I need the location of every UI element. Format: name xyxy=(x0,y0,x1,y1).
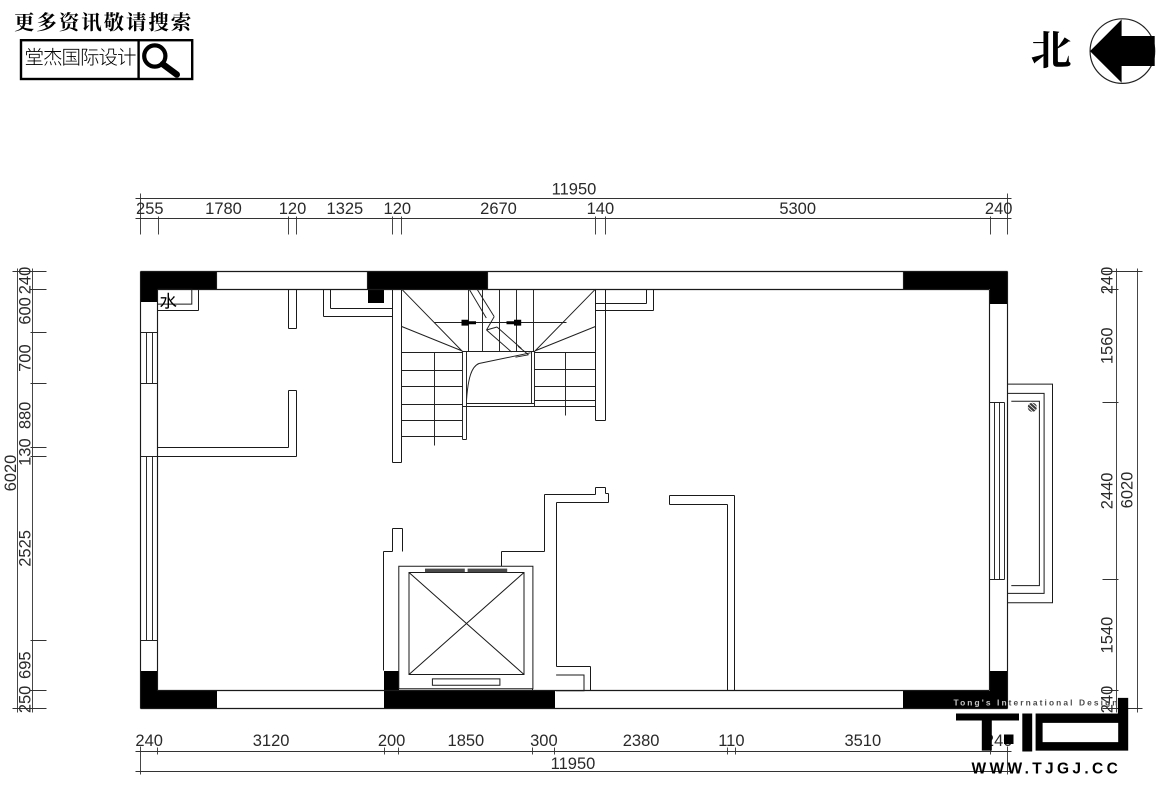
svg-text:110: 110 xyxy=(718,732,744,750)
svg-text:1780: 1780 xyxy=(205,200,242,218)
svg-text:600: 600 xyxy=(17,297,35,325)
svg-text:140: 140 xyxy=(587,200,615,218)
svg-text:300: 300 xyxy=(530,732,558,750)
svg-text:11950: 11950 xyxy=(551,755,596,773)
svg-text:2525: 2525 xyxy=(17,530,35,567)
svg-text:11950: 11950 xyxy=(552,181,597,199)
svg-text:1325: 1325 xyxy=(327,200,364,218)
svg-text:240: 240 xyxy=(17,267,35,295)
svg-text:255: 255 xyxy=(136,200,164,218)
svg-text:240: 240 xyxy=(135,732,163,750)
svg-text:2670: 2670 xyxy=(480,200,517,218)
svg-text:1850: 1850 xyxy=(448,732,485,750)
svg-text:240: 240 xyxy=(985,200,1013,218)
svg-text:240: 240 xyxy=(1099,267,1117,295)
svg-text:1560: 1560 xyxy=(1099,327,1117,364)
svg-text:6020: 6020 xyxy=(1119,472,1137,509)
svg-text:200: 200 xyxy=(378,732,406,750)
svg-text:700: 700 xyxy=(17,344,35,372)
svg-text:5300: 5300 xyxy=(779,200,816,218)
svg-text:3120: 3120 xyxy=(253,732,290,750)
svg-text:3510: 3510 xyxy=(844,732,881,750)
svg-text:695: 695 xyxy=(17,651,35,679)
svg-text:WWW.TJGJ.CC: WWW.TJGJ.CC xyxy=(972,761,1122,778)
svg-text:880: 880 xyxy=(17,402,35,430)
svg-text:120: 120 xyxy=(279,200,307,218)
svg-text:1540: 1540 xyxy=(1099,617,1117,654)
svg-text:250: 250 xyxy=(17,686,35,714)
svg-text:120: 120 xyxy=(384,200,412,218)
svg-text:2380: 2380 xyxy=(623,732,660,750)
svg-text:2440: 2440 xyxy=(1099,473,1117,510)
svg-text:6020: 6020 xyxy=(2,455,20,492)
